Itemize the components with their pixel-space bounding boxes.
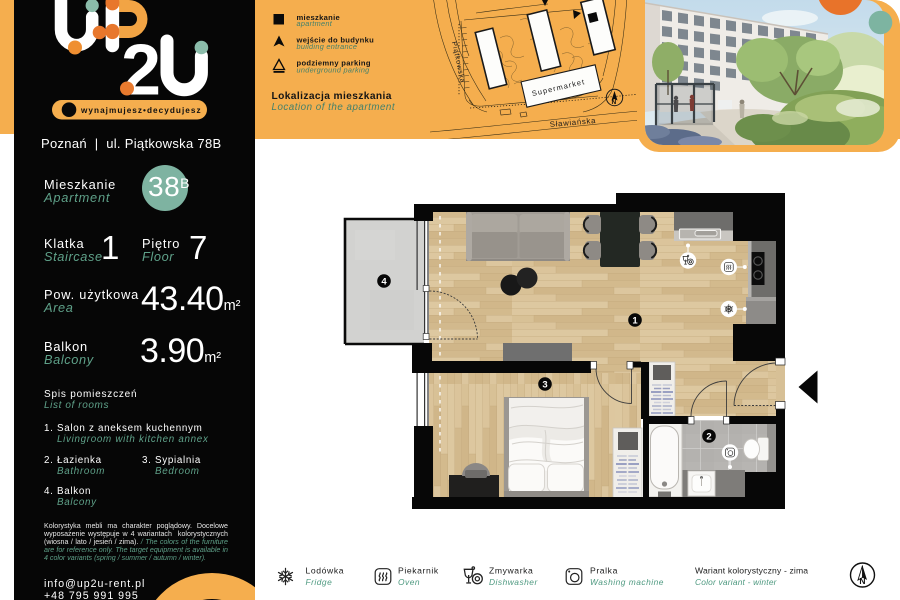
svg-text:Zmywarka: Zmywarka — [489, 566, 533, 576]
svg-text:Washing machine: Washing machine — [590, 577, 664, 587]
svg-text:Pralka: Pralka — [590, 566, 618, 576]
svg-text:N: N — [859, 576, 865, 586]
svg-text:apartment: apartment — [297, 19, 333, 28]
svg-text:Fridge: Fridge — [306, 577, 333, 587]
svg-text:2: 2 — [121, 31, 161, 111]
svg-text:4: 4 — [381, 277, 387, 288]
svg-text:underground parking: underground parking — [297, 66, 370, 75]
svg-text:1: 1 — [632, 316, 638, 327]
svg-text:Piekarnik: Piekarnik — [398, 566, 439, 576]
svg-text:building entrance: building entrance — [297, 42, 358, 51]
svg-text:Lodówka: Lodówka — [306, 566, 345, 576]
svg-text:Lokalizacja mieszkania: Lokalizacja mieszkania — [272, 91, 392, 102]
svg-text:Location of the apartment: Location of the apartment — [272, 102, 396, 113]
svg-text:3: 3 — [542, 380, 547, 391]
svg-text:wynajmujesz•decydujesz: wynajmujesz•decydujesz — [80, 106, 202, 115]
svg-text:Wariant kolorystyczny - zima: Wariant kolorystyczny - zima — [695, 566, 808, 576]
svg-text:Oven: Oven — [398, 577, 420, 587]
svg-text:N: N — [612, 99, 617, 106]
svg-text:Color variant - winter: Color variant - winter — [695, 577, 778, 587]
svg-text:Dishwasher: Dishwasher — [489, 577, 538, 587]
svg-text:2: 2 — [706, 432, 711, 443]
